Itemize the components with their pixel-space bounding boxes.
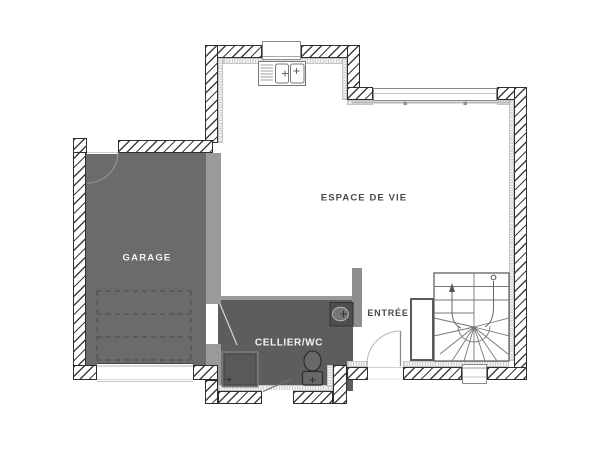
staircase — [434, 273, 509, 361]
garage-service-door — [87, 152, 118, 183]
garage-sectional-door — [97, 291, 191, 364]
floor-plan: GARAGE ESPACE DE VIE CELLIER/WC ENTRÉE — [0, 0, 600, 450]
living-label: ESPACE DE VIE — [321, 193, 407, 204]
cellier-label: CELLIER/WC — [255, 338, 323, 349]
window-handle-icon — [464, 102, 468, 106]
bay-window-details — [352, 94, 511, 106]
cellier-exterior-door — [263, 379, 292, 392]
garage-door-threshold — [97, 366, 193, 380]
wc-toilet — [303, 351, 323, 385]
garage-label: GARAGE — [123, 253, 172, 264]
kitchen-sink — [259, 62, 306, 86]
fixtures-overlay — [0, 0, 600, 450]
window-handle-icon — [404, 102, 408, 106]
utility-unit — [222, 352, 258, 387]
entry-door — [367, 331, 403, 379]
bottom-window-details — [463, 368, 486, 377]
garage-cellier-door — [220, 304, 237, 345]
washbasin — [330, 303, 353, 327]
walk-start-icon — [491, 275, 496, 280]
entry-label: ENTRÉE — [367, 308, 408, 318]
